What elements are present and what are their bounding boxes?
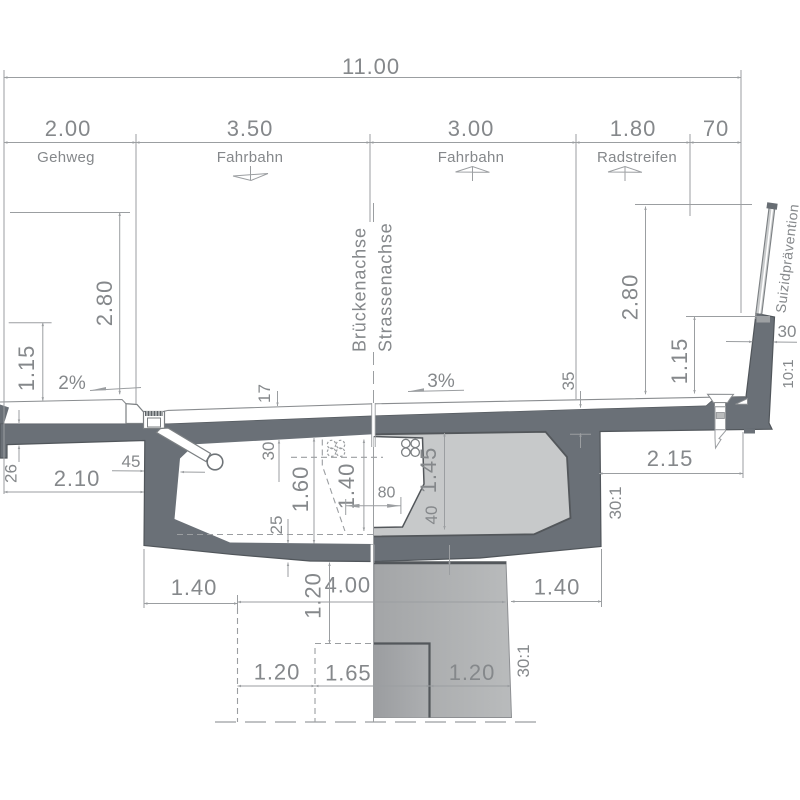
svg-text:1.40: 1.40: [171, 575, 217, 600]
svg-text:1.60: 1.60: [288, 466, 313, 512]
svg-text:Gehweg: Gehweg: [37, 149, 95, 166]
svg-text:Radstreifen: Radstreifen: [597, 149, 677, 166]
svg-text:Brückenachse: Brückenachse: [350, 227, 370, 352]
svg-text:30: 30: [778, 322, 797, 341]
svg-text:17: 17: [255, 384, 274, 403]
svg-text:70: 70: [703, 116, 729, 141]
svg-text:45: 45: [122, 452, 141, 471]
svg-text:2.80: 2.80: [92, 280, 117, 326]
svg-text:25: 25: [267, 516, 286, 535]
svg-text:30:1: 30:1: [514, 644, 533, 677]
svg-text:1.40: 1.40: [334, 463, 359, 509]
svg-text:80: 80: [378, 485, 396, 502]
svg-text:Strassenachse: Strassenachse: [376, 223, 396, 352]
svg-text:3.00: 3.00: [448, 116, 494, 141]
svg-text:3.50: 3.50: [227, 116, 273, 141]
svg-text:1.40: 1.40: [534, 575, 580, 600]
svg-text:2.10: 2.10: [54, 466, 100, 491]
svg-text:2.15: 2.15: [647, 446, 693, 471]
svg-text:1.15: 1.15: [14, 345, 39, 391]
svg-text:30:1: 30:1: [606, 486, 625, 519]
svg-text:4.00: 4.00: [325, 573, 371, 598]
svg-text:30: 30: [259, 442, 278, 461]
svg-text:2.00: 2.00: [45, 116, 91, 141]
svg-text:26: 26: [2, 464, 21, 483]
svg-text:1.65: 1.65: [325, 661, 371, 686]
svg-text:1.15: 1.15: [667, 338, 692, 384]
svg-text:1.20: 1.20: [301, 572, 326, 618]
svg-text:1.80: 1.80: [610, 116, 656, 141]
svg-text:2.80: 2.80: [618, 274, 643, 320]
svg-text:2%: 2%: [58, 373, 86, 394]
svg-text:40: 40: [422, 506, 441, 525]
svg-text:35: 35: [559, 372, 578, 391]
svg-text:1.20: 1.20: [449, 660, 495, 685]
svg-text:1.45: 1.45: [416, 447, 441, 493]
svg-text:11.00: 11.00: [342, 54, 400, 79]
svg-text:3%: 3%: [427, 371, 455, 392]
svg-text:10:1: 10:1: [780, 359, 797, 388]
svg-text:Fahrbahn: Fahrbahn: [217, 149, 284, 166]
svg-text:Fahrbahn: Fahrbahn: [438, 149, 505, 166]
svg-text:1.20: 1.20: [254, 660, 300, 685]
